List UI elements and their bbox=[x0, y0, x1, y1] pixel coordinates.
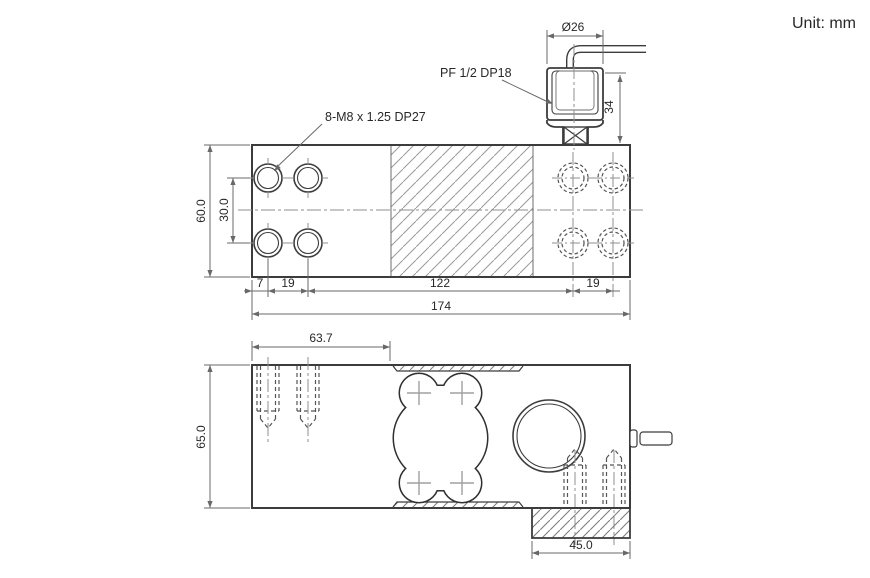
engineering-drawing: Ø26 34 PF 1/2 DP18 8-M8 x 1.25 DP27 60.0 bbox=[0, 0, 870, 578]
section-hatch bbox=[391, 146, 533, 276]
dim-edge-to-first-hole-text: 7 bbox=[257, 276, 264, 290]
mounting-foot bbox=[532, 508, 630, 538]
dim-overall-length-text: 174 bbox=[431, 299, 451, 313]
dim-hole-row-pitch-text: 30.0 bbox=[217, 198, 231, 222]
unit-note: Unit: mm bbox=[792, 15, 856, 32]
cable-exit-side bbox=[630, 430, 672, 447]
top-relief-hatch bbox=[393, 366, 523, 371]
cable-gland-tab bbox=[630, 430, 637, 447]
dim-foot-length-text: 45.0 bbox=[569, 538, 593, 552]
label-connector-spec-text: PF 1/2 DP18 bbox=[440, 66, 512, 80]
dim-left-edge-to-pocket-text: 63.7 bbox=[309, 331, 333, 345]
dim-hole-span-center-text: 122 bbox=[430, 276, 450, 290]
label-thread-spec-text: 8-M8 x 1.25 DP27 bbox=[325, 110, 426, 124]
dim-overall-width-text: 60.0 bbox=[194, 199, 208, 223]
cable-stub bbox=[640, 432, 672, 445]
dim-hole-pitch-right-text: 19 bbox=[586, 276, 600, 290]
dim-overall-height-text: 65.0 bbox=[194, 425, 208, 449]
flexure-cutout bbox=[394, 374, 487, 502]
dim-connector-height-text: 34 bbox=[602, 100, 616, 114]
drawing-canvas: Ø26 34 PF 1/2 DP18 8-M8 x 1.25 DP27 60.0 bbox=[0, 0, 870, 578]
connector-body bbox=[547, 68, 603, 120]
dim-hole-pitch-left-text: 19 bbox=[281, 276, 295, 290]
dim-cable-gland-diameter-text: Ø26 bbox=[562, 20, 585, 34]
